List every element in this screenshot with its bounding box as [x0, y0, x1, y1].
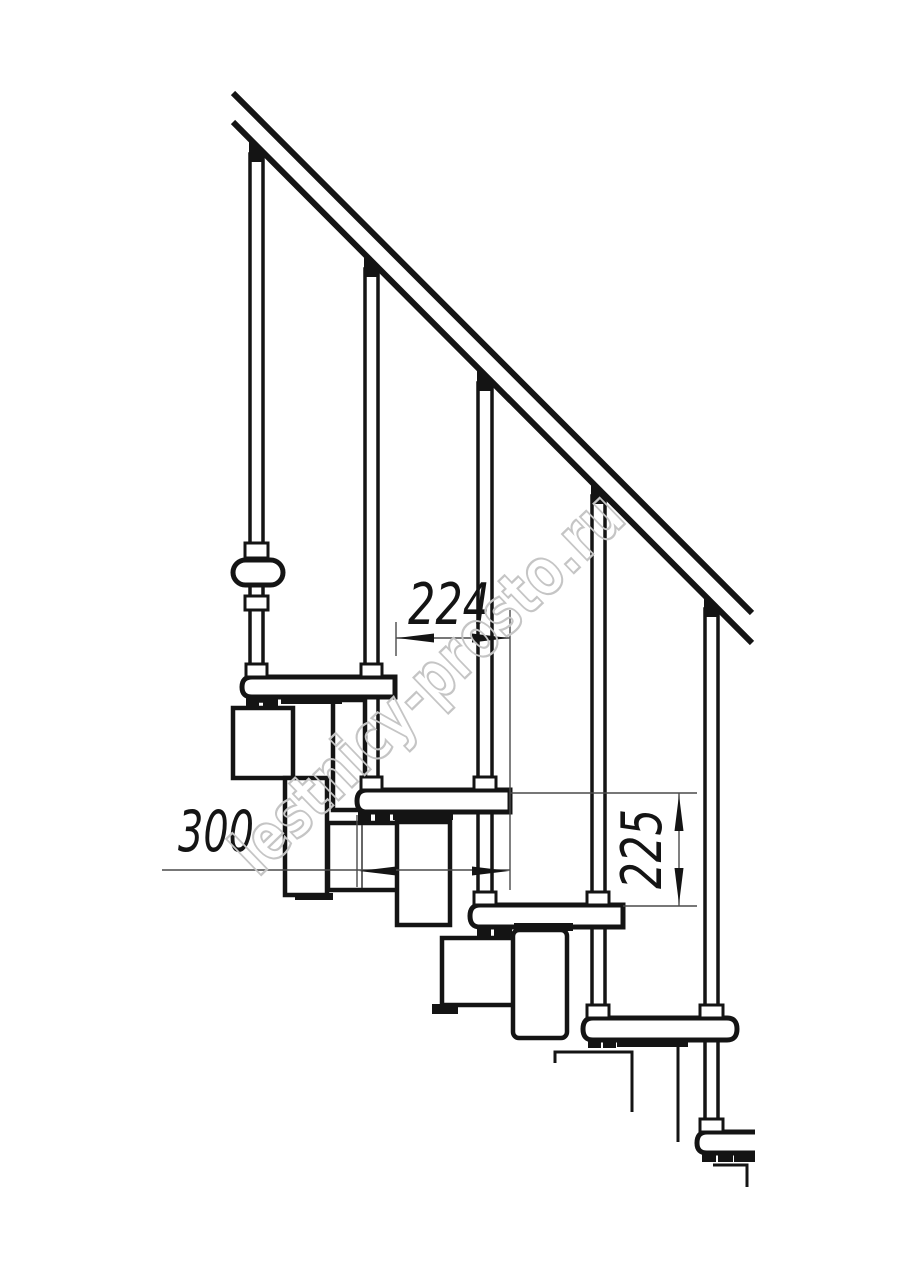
clamp-foot: [702, 1153, 716, 1162]
module-foot-1: [295, 893, 333, 900]
staircase-drawing: 224 300 225 lestnicy-prosto.ru: [0, 0, 914, 1280]
collar: [245, 596, 268, 610]
collar: [246, 664, 267, 677]
collar: [361, 664, 382, 677]
tread-4: [583, 1018, 737, 1040]
baluster-1: [250, 154, 263, 701]
break-line-3: [713, 1165, 747, 1187]
clamp-foot: [477, 927, 491, 936]
clamp-bar: [617, 1040, 688, 1047]
baluster-5: [705, 609, 718, 1135]
tread-upper-edge: [233, 560, 283, 585]
collar: [700, 1005, 723, 1018]
clamp-foot: [494, 927, 512, 937]
module-column-3: [513, 930, 567, 1038]
dimension-text-225: 225: [610, 809, 675, 889]
collar: [587, 892, 609, 905]
arrow-down: [675, 868, 684, 904]
clamp-bar: [393, 812, 453, 820]
collar: [700, 1119, 723, 1132]
clamp-foot: [588, 1040, 601, 1048]
collar: [474, 777, 496, 790]
clamp-foot: [603, 1040, 616, 1048]
clamp-bar: [281, 696, 342, 704]
clamp-foot: [358, 812, 371, 821]
clamp-foot: [263, 697, 278, 707]
module-column-2: [397, 822, 450, 925]
module-foot-2: [432, 1004, 458, 1014]
clamp-foot: [718, 1153, 733, 1162]
clamp-bar: [734, 1155, 755, 1162]
collar: [245, 543, 268, 558]
clamp-bar: [514, 923, 573, 931]
module-box-3: [442, 938, 518, 1005]
tread-5-cut: [697, 1132, 755, 1153]
tread-2: [357, 790, 510, 812]
break-line-1: [555, 1052, 632, 1112]
collar: [474, 892, 496, 905]
arrow-up: [675, 795, 684, 831]
collar: [587, 1005, 609, 1018]
drawing-canvas: 224 300 225 lestnicy-prosto.ru: [0, 0, 914, 1280]
module-box-2: [328, 823, 403, 890]
clamp-foot: [375, 812, 390, 822]
clamp-foot: [246, 697, 259, 706]
